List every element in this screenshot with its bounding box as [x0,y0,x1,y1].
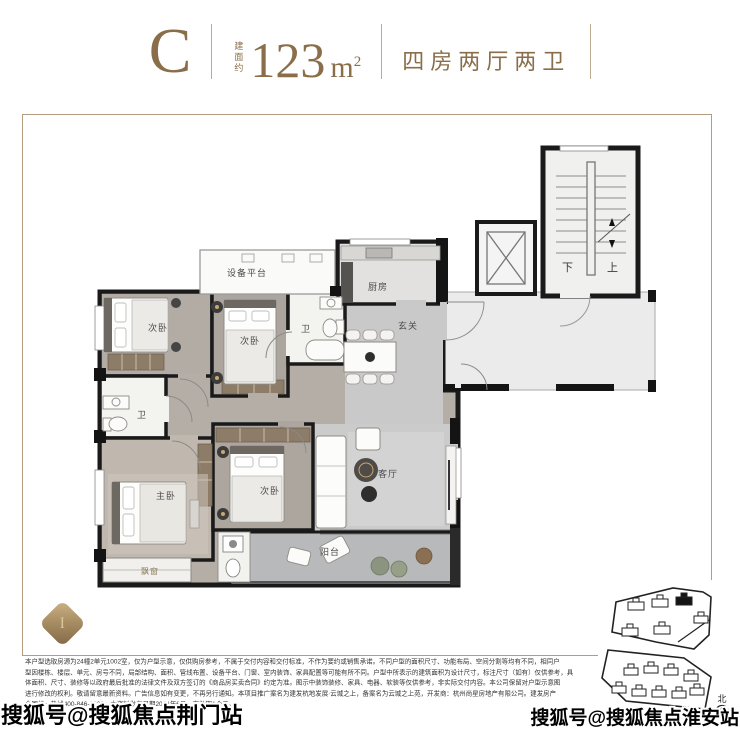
floorplan-page: C 建面约 123 m2 四房两厅两卫 [0,0,740,739]
header-divider [381,24,382,79]
layout-description: 四房两厅两卫 [402,44,570,76]
unit-header: C 建面约 123 m2 四房两厅两卫 [0,22,740,81]
disclaimer-line: 体面积、尺寸、装修等以政府最后批准的法律文件及双方签订的《商品房买卖合同》约定为… [25,678,560,689]
area-group: 建面约 123 m2 [232,40,361,81]
window [350,239,410,245]
bath-b-label: 卫 [137,410,147,420]
unit-type-letter: C [149,22,192,81]
dining-set [344,330,396,384]
equipment-platform-label: 设备平台 [227,267,267,278]
corridor [443,292,655,390]
stair-down-label: 下 [562,262,573,274]
bedroom-b-label: 次卧 [240,335,260,346]
kitchen-label: 厨房 [368,281,388,292]
living-label: 客厅 [378,468,398,479]
bed-master [108,474,208,554]
bay-window-label: 飘窗 [141,566,159,576]
window [95,306,104,350]
disclaimer-line: 型因楼栋、楼层、单元、房号不同，局部结构、面积、管线布置、设备平台、门窗、室内装… [25,668,560,679]
header-divider [211,24,212,79]
watermark-bottom-right: 搜狐号@搜狐焦点淮安站 [530,703,739,730]
master-label: 主卧 [156,490,176,501]
bedroom-c-label: 次卧 [260,485,280,496]
balcony-label: 阳台 [320,546,340,557]
elevator [477,222,535,294]
utility-fixtures [218,532,250,582]
brand-diamond-letter: I [60,614,65,632]
area-value: 123 [250,40,325,81]
bath-a-label: 卫 [301,324,311,334]
entry-label: 玄关 [398,320,418,331]
equipment-platform [200,250,335,294]
header-divider [590,24,591,79]
watermark-bottom-left: 搜狐号@搜狐焦点荆门站 [1,698,242,730]
window [95,470,104,525]
stair-up-label: 上 [607,261,618,274]
area-prefix-label: 建面约 [232,41,245,74]
area-unit: m2 [330,54,361,81]
area-unit-sup: 2 [354,54,362,70]
disclaimer-line: 本户型选取房源为24幢2单元1002室，仅为户型示意，仅供购房参考，不属于交付内… [25,657,560,668]
bedroom-a-label: 次卧 [148,322,168,333]
area-unit-m: m [330,51,353,84]
